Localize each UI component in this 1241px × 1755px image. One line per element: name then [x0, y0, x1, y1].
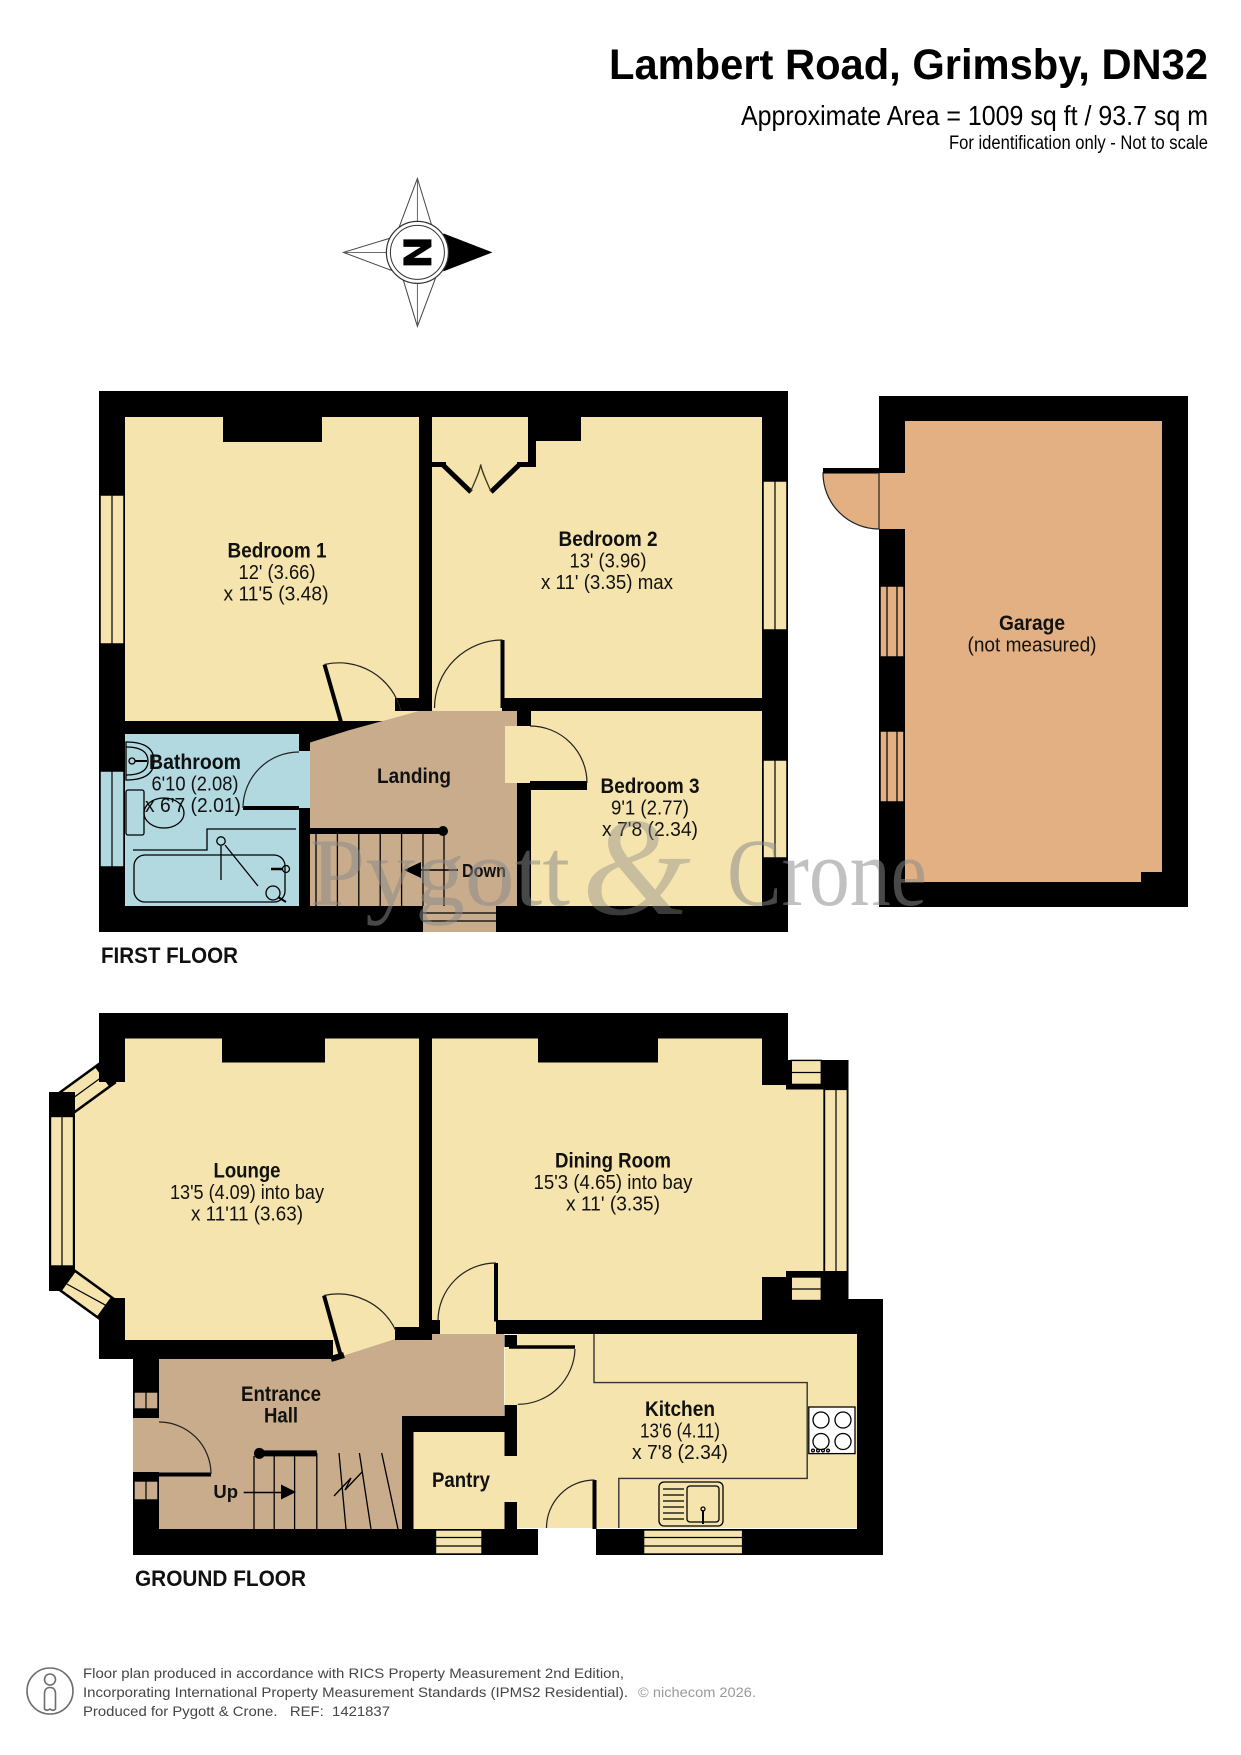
svg-text:13' (3.96): 13' (3.96) [570, 550, 647, 573]
svg-text:13'5 (4.09) into bay: 13'5 (4.09) into bay [170, 1181, 325, 1204]
svg-text:x 7'8 (2.34): x 7'8 (2.34) [632, 1441, 728, 1464]
svg-text:© nichecom 2026.: © nichecom 2026. [638, 1685, 756, 1700]
svg-text:Lambert Road, Grimsby, DN32: Lambert Road, Grimsby, DN32 [609, 41, 1208, 89]
svg-text:Lounge: Lounge [214, 1160, 281, 1183]
svg-text:Floor plan produced in accorda: Floor plan produced in accordance with R… [83, 1666, 624, 1681]
svg-text:Produced for Pygott & Crone.: Produced for Pygott & Crone. REF: 142183… [83, 1704, 390, 1719]
svg-text:Landing: Landing [377, 765, 451, 788]
svg-text:For identification only - Not: For identification only - Not to scale [949, 132, 1208, 154]
svg-text:x 11' (3.35) max: x 11' (3.35) max [541, 571, 674, 594]
svg-text:(not measured): (not measured) [968, 635, 1097, 657]
svg-text:x 6'7 (2.01): x 6'7 (2.01) [145, 794, 241, 817]
svg-text:13'6 (4.11): 13'6 (4.11) [640, 1420, 720, 1443]
svg-text:Entrance: Entrance [241, 1383, 321, 1406]
svg-text:GROUND FLOOR: GROUND FLOOR [135, 1566, 306, 1591]
svg-text:15'3 (4.65) into bay: 15'3 (4.65) into bay [534, 1171, 694, 1194]
svg-text:Approximate Area = 1009 sq ft: Approximate Area = 1009 sq ft / 93.7 sq … [741, 100, 1208, 131]
svg-text:x 11'11 (3.63): x 11'11 (3.63) [191, 1203, 303, 1226]
svg-text:&: & [582, 790, 691, 945]
svg-text:Bedroom 2: Bedroom 2 [559, 528, 658, 551]
svg-text:Hall: Hall [264, 1405, 298, 1428]
svg-text:Bedroom 1: Bedroom 1 [228, 540, 327, 563]
svg-text:Pantry: Pantry [432, 1469, 490, 1492]
svg-text:Up: Up [213, 1481, 238, 1502]
svg-text:Incorporating International Pr: Incorporating International Property Mea… [83, 1685, 628, 1700]
svg-text:Bathroom: Bathroom [149, 751, 241, 774]
svg-text:Pygott: Pygott [310, 819, 570, 926]
svg-text:6'10 (2.08): 6'10 (2.08) [152, 773, 239, 796]
svg-text:x 11'5 (3.48): x 11'5 (3.48) [224, 583, 329, 606]
svg-text:Crone: Crone [727, 819, 927, 926]
svg-text:Dining Room: Dining Room [555, 1150, 671, 1173]
svg-text:Garage: Garage [999, 612, 1065, 635]
svg-text:x 11' (3.35): x 11' (3.35) [566, 1193, 660, 1216]
svg-text:Kitchen: Kitchen [645, 1398, 715, 1421]
svg-text:12' (3.66): 12' (3.66) [239, 561, 316, 584]
svg-text:FIRST FLOOR: FIRST FLOOR [101, 943, 238, 968]
